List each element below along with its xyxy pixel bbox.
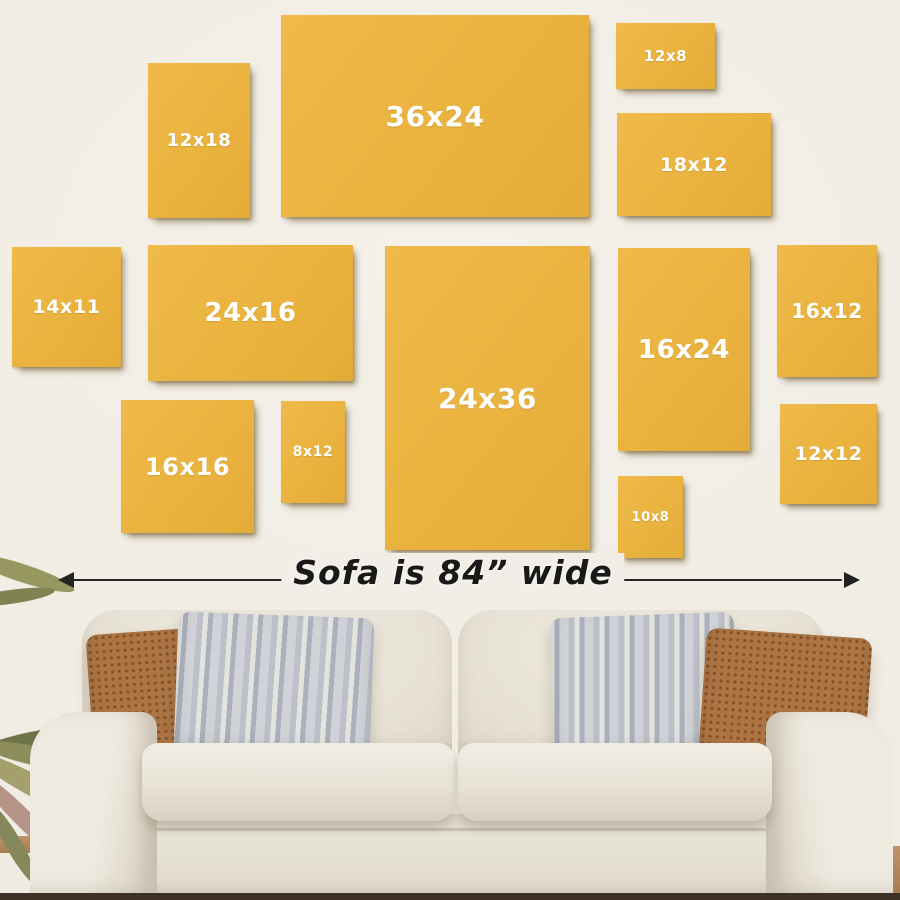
canvas-size-label: 10x8 [632,510,670,525]
canvas-size-box-10x8: 10x8 [618,476,683,558]
arrow-right-head-icon [844,572,860,588]
canvas-size-label: 16x12 [791,299,863,323]
canvas-size-label: 8x12 [293,444,334,460]
canvas-size-label: 12x8 [644,47,687,65]
canvas-size-box-36x24: 36x24 [281,15,589,217]
canvas-size-label: 24x16 [204,298,296,328]
canvas-size-label: 16x24 [638,335,730,365]
canvas-size-box-8x12: 8x12 [281,401,345,503]
canvas-size-label: 18x12 [660,154,728,176]
wall-background: 12x1836x2412x818x1214x1124x1624x3616x241… [0,0,900,900]
canvas-size-label: 24x36 [438,382,537,415]
canvas-size-label: 16x16 [145,453,230,481]
sofa-width-caption: Sofa is 84” wide [281,553,624,592]
canvas-size-label: 36x24 [386,100,485,133]
canvas-size-box-16x12: 16x12 [777,245,877,377]
canvas-size-box-24x36: 24x36 [385,246,590,550]
canvas-size-box-12x8: 12x8 [616,23,715,89]
canvas-size-box-18x12: 18x12 [617,113,771,216]
canvas-size-box-16x24: 16x24 [618,248,750,451]
canvas-size-label: 12x12 [794,443,862,465]
canvas-size-box-12x18: 12x18 [148,63,250,218]
canvas-size-label: 12x18 [167,130,232,151]
canvas-size-box-16x16: 16x16 [121,400,254,533]
canvas-size-box-24x16: 24x16 [148,245,353,381]
canvas-size-box-14x11: 14x11 [12,247,121,367]
canvas-size-label: 14x11 [32,296,100,318]
canvas-size-box-12x12: 12x12 [780,404,877,504]
canvas-size-layer: 12x1836x2412x818x1214x1124x1624x3616x241… [0,0,900,900]
floor-line [0,893,900,900]
